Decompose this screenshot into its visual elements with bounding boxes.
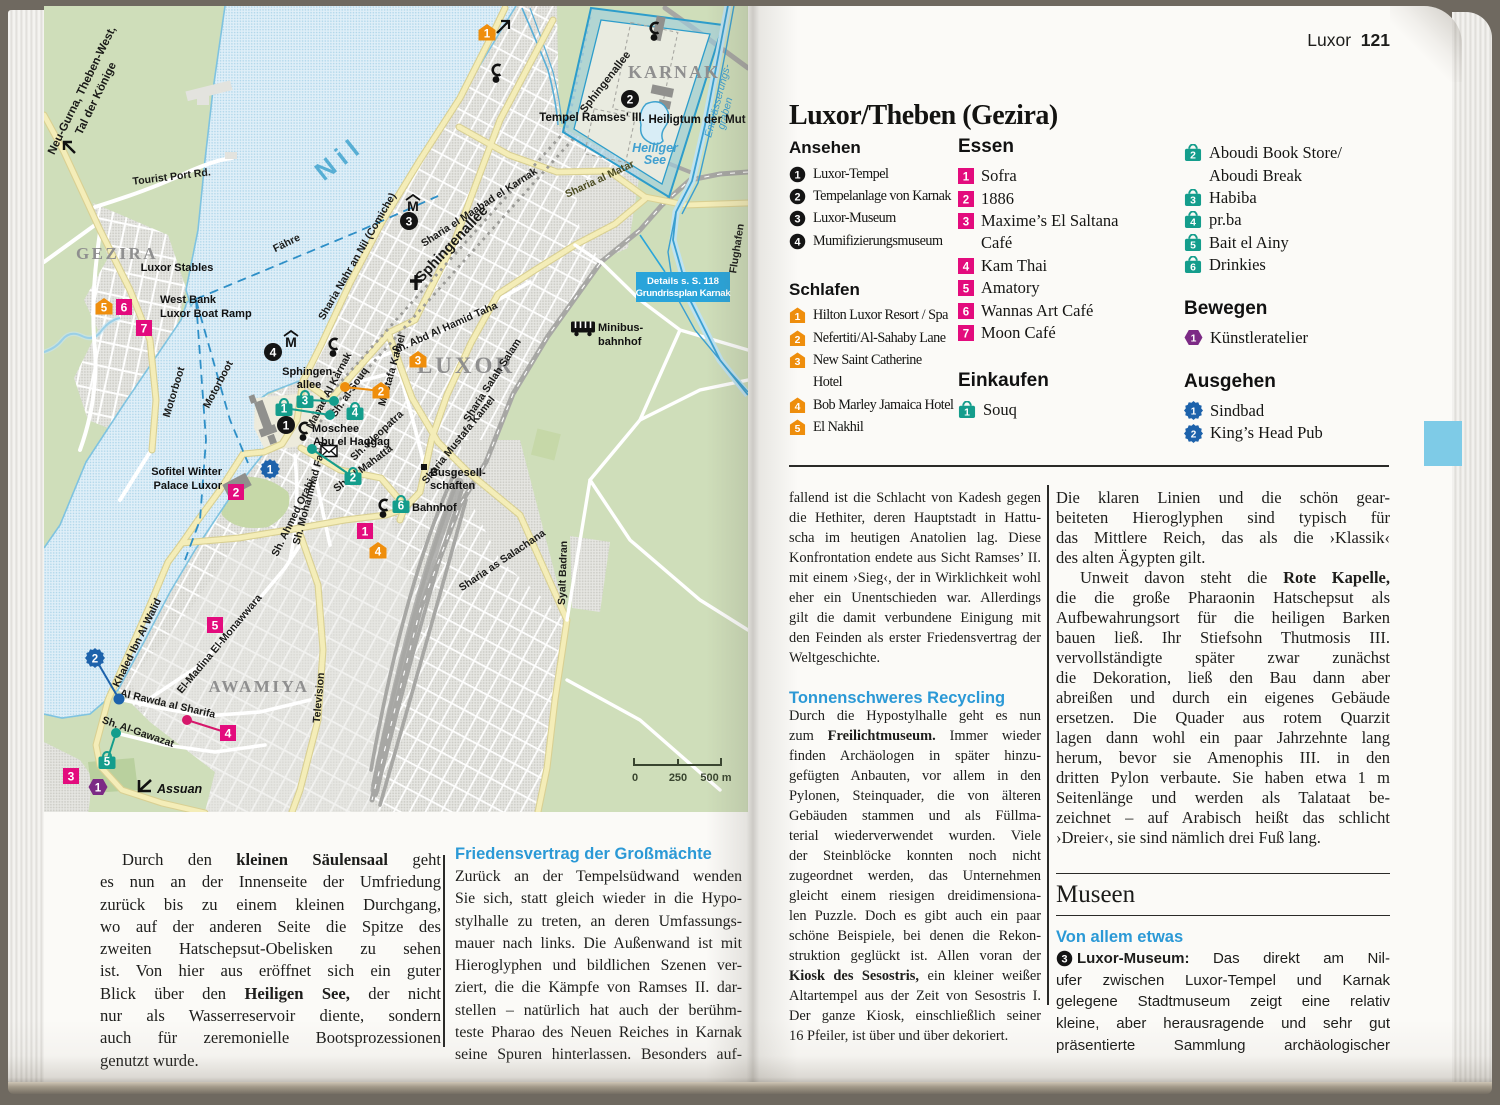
svg-text:KARNAK: KARNAK	[628, 62, 720, 82]
svg-text:0: 0	[632, 772, 638, 784]
svg-text:bahnhof: bahnhof	[598, 336, 642, 348]
svg-text:5: 5	[963, 284, 970, 296]
svg-text:Busgesell-: Busgesell-	[430, 467, 486, 479]
svg-text:5: 5	[1190, 240, 1196, 251]
svg-text:1: 1	[1191, 407, 1197, 418]
svg-text:5: 5	[104, 757, 111, 769]
svg-text:6: 6	[1190, 263, 1196, 274]
svg-text:3: 3	[963, 216, 969, 228]
svg-text:4: 4	[795, 402, 801, 413]
svg-text:6: 6	[963, 306, 969, 318]
svg-text:4: 4	[270, 346, 277, 360]
svg-text:M: M	[285, 334, 297, 350]
svg-text:GEZIRA: GEZIRA	[76, 244, 158, 263]
svg-text:Luxor Boat Ramp: Luxor Boat Ramp	[160, 308, 252, 320]
svg-text:2: 2	[1190, 151, 1196, 162]
svg-text:2: 2	[627, 93, 634, 107]
svg-text:4: 4	[963, 261, 970, 273]
svg-text:allee: allee	[297, 379, 321, 391]
svg-text:Heiligtum der Mut: Heiligtum der Mut	[648, 114, 745, 126]
svg-text:AWAMIYA: AWAMIYA	[209, 677, 310, 696]
svg-text:2: 2	[1191, 429, 1197, 440]
svg-text:7: 7	[963, 328, 969, 340]
svg-text:2: 2	[795, 335, 801, 346]
svg-text:5: 5	[101, 303, 108, 315]
svg-text:1: 1	[267, 465, 274, 477]
svg-text:3: 3	[406, 215, 413, 229]
svg-text:Assuan: Assuan	[156, 782, 203, 796]
svg-text:5: 5	[795, 424, 801, 435]
svg-text:1: 1	[281, 404, 288, 416]
svg-text:3: 3	[68, 770, 75, 784]
svg-text:1: 1	[95, 783, 102, 795]
svg-text:Bahnhof: Bahnhof	[412, 502, 457, 514]
svg-text:5: 5	[212, 619, 219, 633]
svg-text:Tempel Ramses' III.: Tempel Ramses' III.	[539, 112, 644, 124]
svg-text:4: 4	[225, 727, 232, 741]
svg-text:7: 7	[141, 322, 148, 336]
svg-text:3: 3	[302, 396, 308, 408]
svg-text:Minibus-: Minibus-	[598, 322, 644, 334]
svg-text:1: 1	[484, 29, 491, 41]
svg-text:schaften: schaften	[430, 480, 476, 492]
svg-text:2: 2	[963, 194, 969, 206]
svg-text:2: 2	[378, 387, 384, 399]
svg-text:1: 1	[964, 408, 970, 419]
svg-text:4: 4	[375, 547, 382, 559]
svg-text:500 m: 500 m	[700, 772, 731, 784]
svg-text:3: 3	[794, 214, 800, 226]
svg-text:West Bank: West Bank	[160, 294, 217, 306]
svg-text:Moschee: Moschee	[312, 423, 359, 435]
svg-text:Luxor Stables: Luxor Stables	[141, 262, 214, 274]
svg-text:2: 2	[233, 486, 240, 500]
svg-text:1: 1	[963, 172, 970, 184]
svg-text:1: 1	[283, 419, 290, 433]
svg-text:Sofitel Winter: Sofitel Winter	[151, 466, 223, 478]
svg-text:4: 4	[794, 236, 800, 248]
svg-text:250: 250	[669, 772, 687, 784]
svg-text:Sphingen-: Sphingen-	[282, 366, 336, 378]
svg-text:Grundrissplan Karnak: Grundrissplan Karnak	[636, 288, 732, 299]
svg-text:4: 4	[352, 408, 359, 420]
svg-text:Syalt Badran: Syalt Badran	[556, 541, 570, 606]
svg-text:1: 1	[795, 312, 801, 323]
svg-text:Palace Luxor: Palace Luxor	[154, 480, 223, 492]
svg-text:2: 2	[92, 654, 98, 666]
svg-text:1: 1	[1191, 334, 1197, 345]
svg-text:3: 3	[1190, 196, 1196, 207]
svg-text:3: 3	[1061, 953, 1067, 965]
svg-text:M: M	[407, 198, 419, 214]
svg-text:2: 2	[350, 473, 356, 485]
svg-text:3: 3	[415, 356, 421, 368]
svg-text:3: 3	[795, 357, 801, 368]
svg-text:See: See	[644, 153, 666, 167]
svg-text:1: 1	[794, 169, 800, 181]
svg-text:2: 2	[794, 192, 800, 204]
svg-text:4: 4	[1190, 218, 1196, 229]
svg-text:6: 6	[398, 501, 404, 513]
svg-text:Details s. S. 118: Details s. S. 118	[647, 276, 720, 287]
svg-text:1: 1	[362, 525, 369, 539]
svg-text:6: 6	[121, 301, 128, 315]
